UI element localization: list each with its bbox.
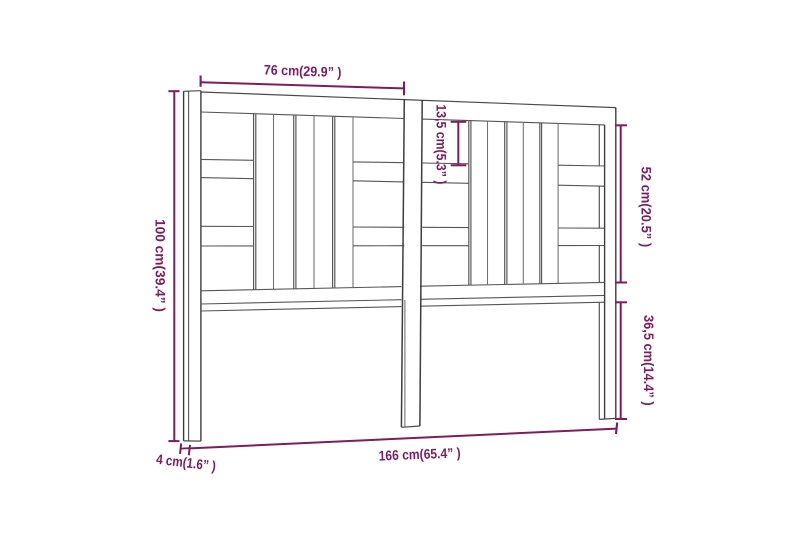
- svg-text:36,5 cm(14.4” ): 36,5 cm(14.4” ): [641, 315, 657, 406]
- svg-text:13,5 cm(5.3” ): 13,5 cm(5.3” ): [433, 104, 449, 184]
- svg-text:52 cm(20.5” ): 52 cm(20.5” ): [638, 167, 654, 248]
- svg-text:76 cm(29.9” ): 76 cm(29.9” ): [264, 61, 342, 80]
- svg-text:100 cm(39.4” ): 100 cm(39.4” ): [152, 219, 168, 312]
- svg-text:166 cm(65.4” ): 166 cm(65.4” ): [378, 444, 461, 463]
